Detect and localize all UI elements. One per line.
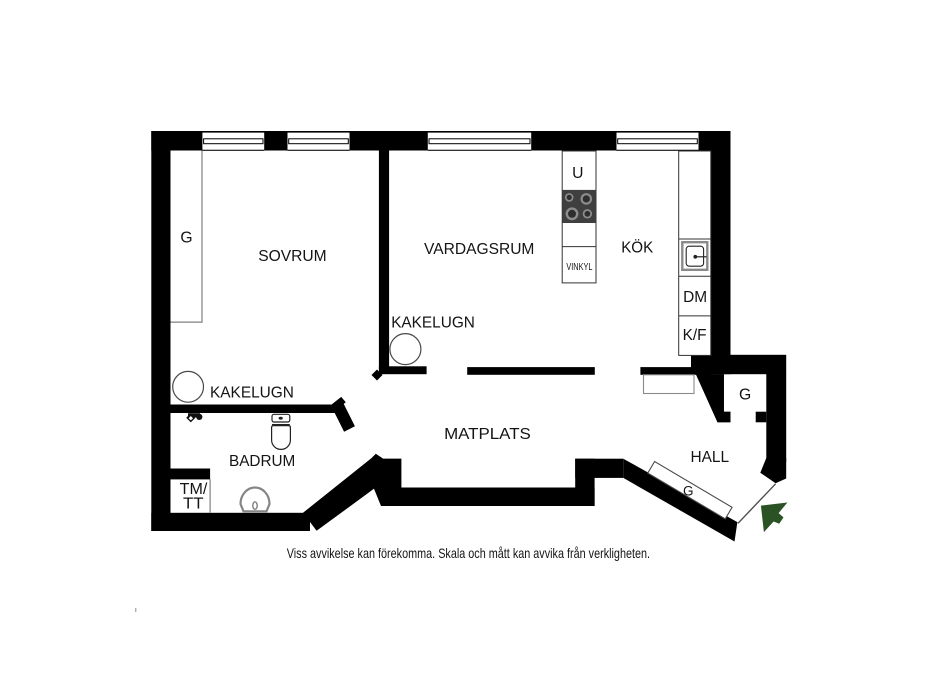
svg-text:KAKELUGN: KAKELUGN	[391, 315, 475, 332]
svg-text:G: G	[739, 387, 751, 404]
svg-text:U: U	[572, 165, 583, 182]
svg-text:KAKELUGN: KAKELUGN	[210, 385, 294, 402]
svg-text:K/F: K/F	[683, 327, 707, 344]
svg-text:HALL: HALL	[691, 449, 730, 466]
svg-text:BADRUM: BADRUM	[229, 453, 295, 470]
svg-text:DM: DM	[683, 289, 707, 306]
svg-text:TT: TT	[183, 495, 204, 512]
svg-text:KÖK: KÖK	[621, 238, 654, 256]
svg-text:SOVRUM: SOVRUM	[258, 248, 327, 265]
svg-text:MATPLATS: MATPLATS	[444, 426, 531, 443]
svg-text:VARDAGSRUM: VARDAGSRUM	[424, 241, 534, 258]
svg-text:G: G	[180, 229, 192, 246]
svg-text:VINKYL: VINKYL	[566, 261, 592, 273]
svg-text:G: G	[683, 483, 694, 498]
svg-text:Viss avvikelse kan förekomma.: Viss avvikelse kan förekomma. Skala och …	[287, 545, 650, 561]
